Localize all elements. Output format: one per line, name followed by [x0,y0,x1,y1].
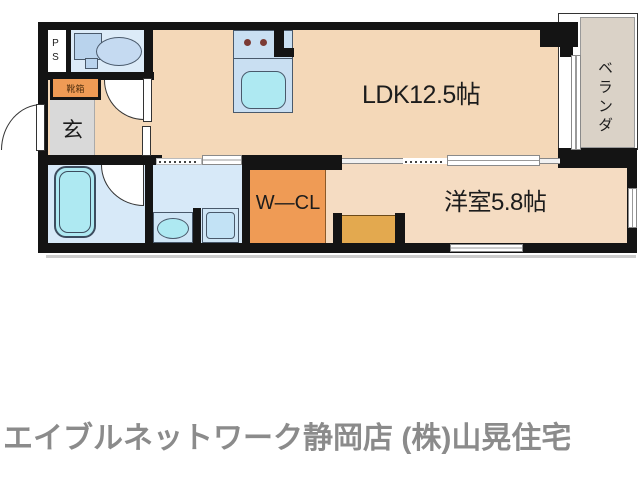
wall-kitchen-stub-h [274,48,294,57]
wall-ps-divider [66,30,71,73]
wall-bottom [38,243,637,253]
kitchen-sink [241,71,286,109]
entrance-label: 玄 [50,114,95,144]
walk-in-closet-label: W—CL [250,192,326,215]
ldk-western-sliding-door [447,155,540,166]
kitchen-counter [233,30,293,113]
veranda-label: ベランダ [594,60,615,136]
toilet-flush-handle [85,58,98,69]
wall-veranda-bottom [558,148,637,168]
wall-wcl-top [242,155,342,170]
plan-shadow [46,255,636,258]
wall-sink-stub [193,208,201,243]
wall-ldk-right [560,30,573,57]
shoe-box-label: 靴箱 [66,84,84,94]
pipe-space-label: PS [50,38,61,66]
toilet-bowl [96,37,142,66]
wall-closet-stub-left [333,213,342,243]
stove-burner-icon [244,39,251,46]
wall-top [38,22,578,30]
wall-closet-stub-right [395,213,405,243]
bathtub [54,166,96,238]
floorplan-page: 靴箱 PS 玄 LDK12.5帖 洋室5.8帖 W—CL ベランダ エイブルネッ… [0,0,640,480]
ldk-veranda-window [571,55,581,150]
footer-brand: エイブルネットワーク静岡店 (株)山晃住宅 [3,413,571,457]
washing-machine [206,212,235,239]
bathtub-inner [59,171,91,233]
wall-bath-wash-divider [145,155,153,243]
toilet-door-leaf [143,78,152,122]
washroom-door-leaf [142,126,151,156]
shoe-box: 靴箱 [53,79,98,97]
western-room-label: 洋室5.8帖 [444,182,546,217]
washroom-opening-track [156,158,202,165]
western-bottom-window [450,244,523,252]
washroom-sliding-door [202,155,242,165]
western-right-window [628,188,637,228]
entrance-door-leaf [36,104,45,151]
ldk-label: LDK12.5帖 [362,75,480,111]
wall-toilet-right [144,22,153,75]
stove-burner-icon [260,39,267,46]
wall-wcl-left [242,155,250,243]
ldk-western-open-section [403,158,447,164]
vanity-sink [157,218,189,239]
closet-box [342,215,395,243]
